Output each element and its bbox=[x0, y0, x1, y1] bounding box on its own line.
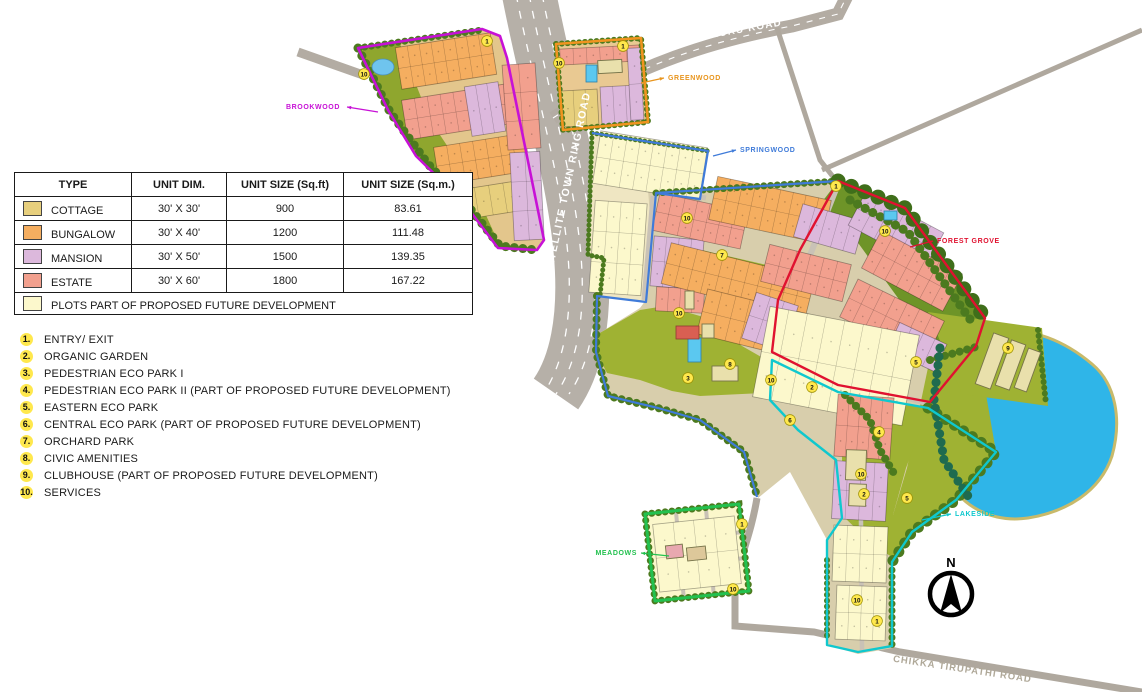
svg-text:1: 1 bbox=[875, 618, 879, 625]
swimming-pool bbox=[586, 65, 597, 82]
label-greenwood: GREENWOOD bbox=[641, 75, 721, 83]
pond bbox=[372, 59, 394, 75]
svg-text:5: 5 bbox=[914, 359, 918, 366]
swimming-pool bbox=[688, 338, 701, 362]
swimming-pool bbox=[884, 211, 897, 220]
amenity-number: 9. bbox=[20, 469, 33, 482]
amenity-label: ENTRY/ EXIT bbox=[44, 334, 114, 346]
color-swatch bbox=[23, 296, 42, 311]
svg-text:SPRINGWOOD: SPRINGWOOD bbox=[740, 147, 795, 154]
svg-text:7: 7 bbox=[720, 252, 724, 259]
map-marker-9: 9 bbox=[1003, 343, 1014, 354]
map-marker-10: 10 bbox=[766, 375, 777, 386]
svg-text:1: 1 bbox=[621, 43, 625, 50]
svg-text:10: 10 bbox=[360, 71, 368, 78]
svg-text:10: 10 bbox=[675, 310, 683, 317]
svg-text:6: 6 bbox=[788, 417, 792, 424]
building bbox=[665, 544, 683, 559]
svg-text:1: 1 bbox=[834, 183, 838, 190]
amenity-number: 4. bbox=[20, 384, 33, 397]
map-marker-5: 5 bbox=[911, 357, 922, 368]
svg-text:BROOKWOOD: BROOKWOOD bbox=[286, 104, 340, 111]
map-marker-4: 4 bbox=[874, 427, 885, 438]
unit-dim-cell: 30' X 50' bbox=[132, 245, 227, 269]
label-brookwood: BROOKWOOD bbox=[286, 104, 378, 112]
amenity-number: 6. bbox=[20, 418, 33, 431]
svg-text:10: 10 bbox=[767, 377, 775, 384]
amenity-number: 5. bbox=[20, 401, 33, 414]
svg-text:10: 10 bbox=[683, 215, 691, 222]
unit-sqm-cell: 167.22 bbox=[344, 269, 473, 293]
svg-text:10: 10 bbox=[555, 60, 563, 67]
map-marker-5: 5 bbox=[902, 493, 913, 504]
future-plots-cell: PLOTS PART OF PROPOSED FUTURE DEVELOPMEN… bbox=[15, 293, 473, 315]
north-label: N bbox=[946, 555, 955, 570]
legend-row: ESTATE 30' X 60' 1800 167.22 bbox=[15, 269, 473, 293]
col-dim: UNIT DIM. bbox=[132, 173, 227, 197]
svg-text:10: 10 bbox=[881, 228, 889, 235]
amenity-number: 2. bbox=[20, 350, 33, 363]
amenities-list: 1.ENTRY/ EXIT2.ORGANIC GARDEN3.PEDESTRIA… bbox=[20, 331, 451, 501]
svg-text:LAKESIDE: LAKESIDE bbox=[955, 511, 995, 518]
svg-text:8: 8 bbox=[728, 361, 732, 368]
unit-sqft-cell: 1500 bbox=[227, 245, 344, 269]
north-compass: N bbox=[930, 555, 972, 615]
building bbox=[712, 366, 738, 381]
amenity-item: 1.ENTRY/ EXIT bbox=[20, 331, 451, 348]
legend-future-row: PLOTS PART OF PROPOSED FUTURE DEVELOPMEN… bbox=[15, 293, 473, 315]
unit-sqm-cell: 111.48 bbox=[344, 221, 473, 245]
svg-text:10: 10 bbox=[857, 471, 865, 478]
unit-type-cell: MANSION bbox=[15, 245, 132, 269]
plot-block-future bbox=[589, 200, 647, 295]
svg-text:FOREST GROVE: FOREST GROVE bbox=[937, 238, 1000, 245]
svg-text:10: 10 bbox=[729, 586, 737, 593]
svg-text:1: 1 bbox=[740, 521, 744, 528]
amenity-item: 6.CENTRAL ECO PARK (PART OF PROPOSED FUT… bbox=[20, 416, 451, 433]
amenity-label: SERVICES bbox=[44, 487, 101, 499]
map-marker-1: 1 bbox=[831, 181, 842, 192]
amenity-label: EASTERN ECO PARK bbox=[44, 402, 158, 414]
map-marker-10: 10 bbox=[359, 69, 370, 80]
map-marker-10: 10 bbox=[554, 58, 565, 69]
col-sqm: UNIT SIZE (Sq.m.) bbox=[344, 173, 473, 197]
amenity-item: 10.SERVICES bbox=[20, 484, 451, 501]
amenity-number: 1. bbox=[20, 333, 33, 346]
legend-row: BUNGALOW 30' X 40' 1200 111.48 bbox=[15, 221, 473, 245]
unit-type-cell: BUNGALOW bbox=[15, 221, 132, 245]
map-marker-2: 2 bbox=[807, 382, 818, 393]
map-marker-7: 7 bbox=[717, 250, 728, 261]
svg-text:5: 5 bbox=[905, 495, 909, 502]
svg-text:4: 4 bbox=[877, 429, 881, 436]
svg-text:9: 9 bbox=[1006, 345, 1010, 352]
amenity-item: 5.EASTERN ECO PARK bbox=[20, 399, 451, 416]
legend-row: MANSION 30' X 50' 1500 139.35 bbox=[15, 245, 473, 269]
unit-dim-cell: 30' X 60' bbox=[132, 269, 227, 293]
map-marker-10: 10 bbox=[674, 308, 685, 319]
sports-court bbox=[676, 326, 699, 339]
map-marker-10: 10 bbox=[880, 226, 891, 237]
amenity-label: CIVIC AMENITIES bbox=[44, 453, 138, 465]
svg-text:10: 10 bbox=[853, 597, 861, 604]
svg-text:2: 2 bbox=[810, 384, 814, 391]
unit-sqft-cell: 900 bbox=[227, 197, 344, 221]
map-marker-1: 1 bbox=[737, 519, 748, 530]
amenity-label: ORGANIC GARDEN bbox=[44, 351, 148, 363]
amenity-number: 3. bbox=[20, 367, 33, 380]
unit-dim-cell: 30' X 30' bbox=[132, 197, 227, 221]
amenity-label: PEDESTRIAN ECO PARK II (PART OF PROPOSED… bbox=[44, 385, 451, 397]
legend-header-row: TYPE UNIT DIM. UNIT SIZE (Sq.ft) UNIT SI… bbox=[15, 173, 473, 197]
brookwood-stub bbox=[298, 52, 366, 76]
amenity-label: CLUBHOUSE (PART OF PROPOSED FUTURE DEVEL… bbox=[44, 470, 378, 482]
svg-text:1: 1 bbox=[485, 38, 489, 45]
unit-sqft-cell: 1800 bbox=[227, 269, 344, 293]
map-marker-10: 10 bbox=[682, 213, 693, 224]
map-marker-2: 2 bbox=[859, 489, 870, 500]
plot-block-mansion bbox=[510, 151, 545, 240]
unit-type-cell: ESTATE bbox=[15, 269, 132, 293]
color-swatch bbox=[23, 225, 42, 240]
label-springwood: SPRINGWOOD bbox=[713, 147, 795, 156]
map-marker-3: 3 bbox=[683, 373, 694, 384]
map-marker-1: 1 bbox=[618, 41, 629, 52]
map-marker-8: 8 bbox=[725, 359, 736, 370]
amenity-item: 8.CIVIC AMENITIES bbox=[20, 450, 451, 467]
building bbox=[598, 59, 623, 73]
map-marker-1: 1 bbox=[482, 36, 493, 47]
svg-text:GREENWOOD: GREENWOOD bbox=[668, 75, 721, 82]
east-road bbox=[822, 30, 1142, 170]
legend-row: COTTAGE 30' X 30' 900 83.61 bbox=[15, 197, 473, 221]
plot-block-mansion bbox=[464, 82, 505, 137]
amenity-number: 8. bbox=[20, 452, 33, 465]
svg-text:MEADOWS: MEADOWS bbox=[595, 550, 637, 557]
map-marker-10: 10 bbox=[852, 595, 863, 606]
building bbox=[685, 291, 694, 309]
building bbox=[702, 324, 714, 338]
map-marker-10: 10 bbox=[856, 469, 867, 480]
amenity-item: 3.PEDESTRIAN ECO PARK I bbox=[20, 365, 451, 382]
amenity-item: 9.CLUBHOUSE (PART OF PROPOSED FUTURE DEV… bbox=[20, 467, 451, 484]
amenity-label: ORCHARD PARK bbox=[44, 436, 134, 448]
unit-type-cell: COTTAGE bbox=[15, 197, 132, 221]
building bbox=[686, 546, 706, 561]
amenity-number: 7. bbox=[20, 435, 33, 448]
amenity-item: 7.ORCHARD PARK bbox=[20, 433, 451, 450]
plot-block-estate bbox=[502, 63, 541, 150]
plot-block-future bbox=[835, 585, 887, 641]
amenity-label: PEDESTRIAN ECO PARK I bbox=[44, 368, 184, 380]
amenity-item: 4.PEDESTRIAN ECO PARK II (PART OF PROPOS… bbox=[20, 382, 451, 399]
site-master-plan: PROPOSED SATELLITE TOWN RING ROADGANAGAL… bbox=[0, 0, 1142, 692]
col-sqft: UNIT SIZE (Sq.ft) bbox=[227, 173, 344, 197]
map-marker-1: 1 bbox=[872, 616, 883, 627]
unit-dim-cell: 30' X 40' bbox=[132, 221, 227, 245]
unit-legend-table: TYPE UNIT DIM. UNIT SIZE (Sq.ft) UNIT SI… bbox=[14, 172, 473, 315]
color-swatch bbox=[23, 273, 42, 288]
amenity-number: 10. bbox=[20, 486, 33, 499]
map-marker-6: 6 bbox=[785, 415, 796, 426]
plot-block-future bbox=[832, 525, 888, 583]
amenity-item: 2.ORGANIC GARDEN bbox=[20, 348, 451, 365]
svg-text:2: 2 bbox=[862, 491, 866, 498]
map-marker-10: 10 bbox=[728, 584, 739, 595]
unit-sqm-cell: 83.61 bbox=[344, 197, 473, 221]
amenity-label: CENTRAL ECO PARK (PART OF PROPOSED FUTUR… bbox=[44, 419, 421, 431]
color-swatch bbox=[23, 249, 42, 264]
col-type: TYPE bbox=[15, 173, 132, 197]
svg-text:3: 3 bbox=[686, 375, 690, 382]
color-swatch bbox=[23, 201, 42, 216]
unit-sqft-cell: 1200 bbox=[227, 221, 344, 245]
unit-sqm-cell: 139.35 bbox=[344, 245, 473, 269]
